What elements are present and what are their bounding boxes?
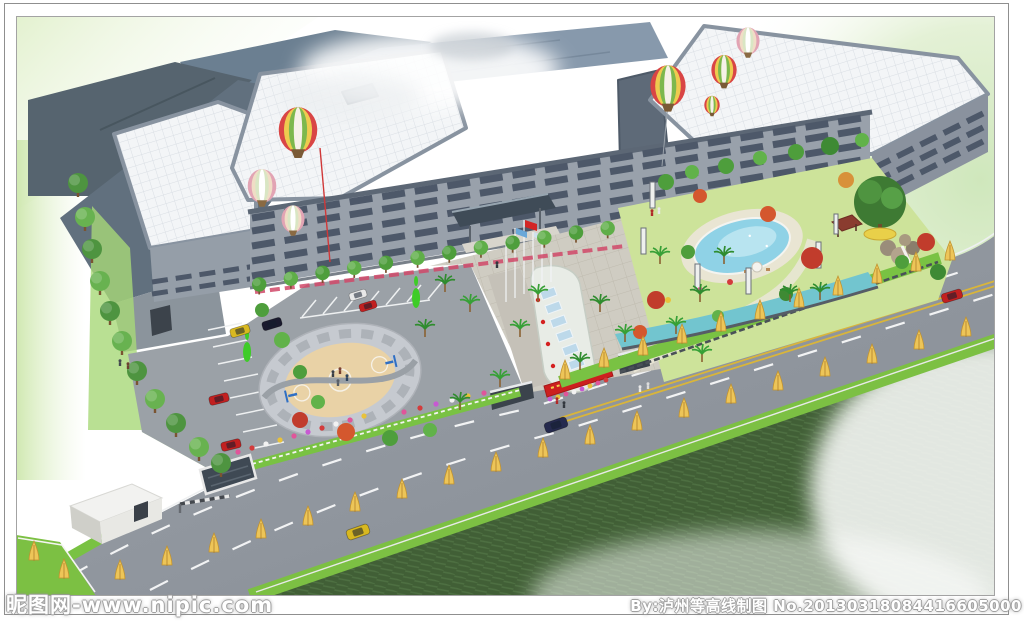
stock-image-page: 昵图网-www.nipic.com By:泸州等高线制图 No.20130318…: [0, 0, 1024, 622]
red-maple: [801, 247, 823, 269]
parasol: [752, 262, 762, 272]
watermark-credit-text: By:泸州等高线制图 No.20130318084416605000: [630, 597, 1022, 615]
watermark-credit: By:泸州等高线制图 No.20130318084416605000: [630, 595, 1022, 616]
architectural-rendering: [0, 0, 1024, 622]
yellow-flower-ring: [864, 228, 896, 240]
watermark-site-text: 昵图网-www.nipic.com: [6, 593, 273, 617]
watermark-site: 昵图网-www.nipic.com: [6, 589, 273, 619]
